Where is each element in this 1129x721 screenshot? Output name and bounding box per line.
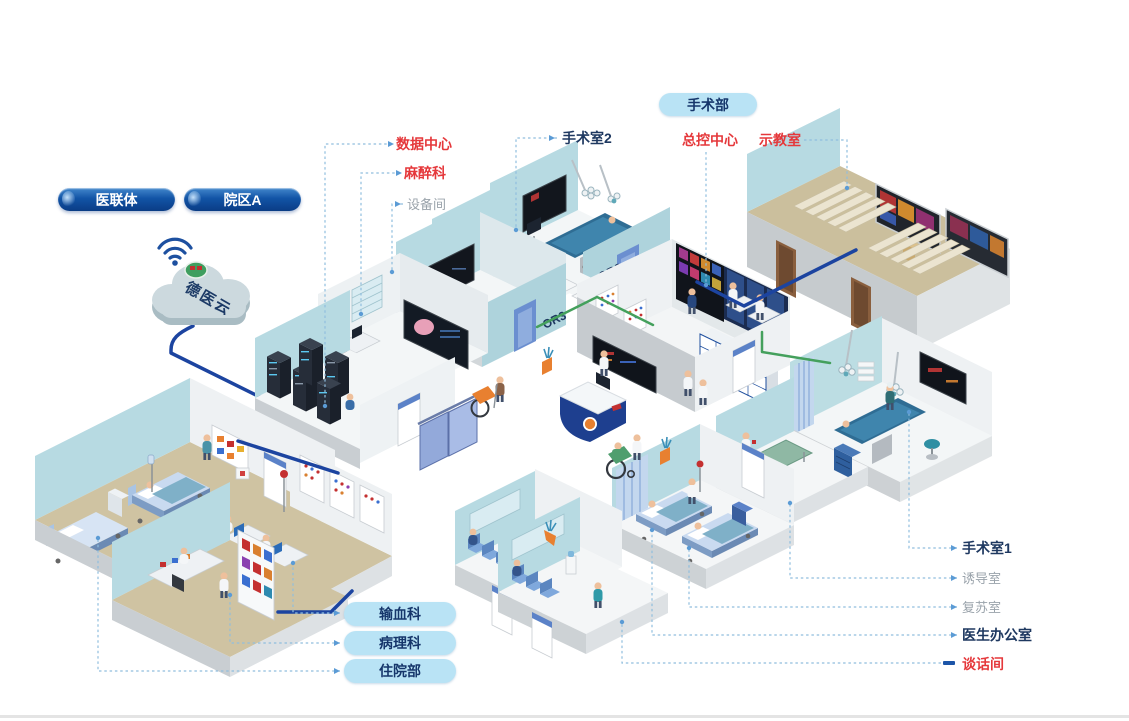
label-data-center: 数据中心: [396, 136, 452, 152]
label-demo-classroom: 示教室: [759, 132, 801, 148]
cloud-shape: 德医云: [152, 262, 250, 325]
bottom-edge-line: [0, 715, 1129, 718]
label-talk-room: 谈话间: [962, 656, 1004, 672]
cloud-platform: 德医云: [152, 239, 250, 325]
hall-plant-1: [542, 347, 553, 375]
pill-campus-a: 院区A: [184, 188, 301, 211]
label-equipment-room: 设备间: [407, 197, 446, 213]
label-induction-room: 诱导室: [962, 571, 1001, 587]
waiting-sitter-2: [513, 560, 522, 576]
reception-nurse: [600, 350, 609, 376]
medicine-cart: [236, 468, 249, 479]
pill-blood-transfusion: 输血科: [344, 602, 456, 626]
pill-medical-alliance-label: 医联体: [96, 190, 138, 210]
waiting-sitter-1: [469, 529, 478, 545]
cloud-badge: [185, 262, 207, 278]
pill-surgery-department-label: 手术部: [687, 95, 729, 115]
isometric-illustration: OR2 O: [0, 0, 1129, 721]
or1-equipment-cart: [858, 362, 874, 381]
or1-curtains: [794, 356, 814, 434]
label-master-control: 总控中心: [682, 132, 738, 148]
pill-inpatient: 住院部: [344, 659, 456, 683]
pill-campus-a-label: 院区A: [223, 190, 261, 210]
pill-pathology: 病理科: [344, 631, 456, 655]
pill-cap-highlight: [62, 191, 75, 207]
label-doctor-office: 医生办公室: [962, 627, 1032, 643]
pill-medical-alliance: 医联体: [58, 188, 175, 211]
label-operating-room-1: 手术室1: [962, 540, 1012, 556]
reception-logo: [585, 419, 595, 429]
wifi-icon: [159, 239, 191, 266]
pill-blood-transfusion-label: 输血科: [379, 604, 421, 624]
hospital-isometric-diagram: OR2 O: [0, 0, 1129, 721]
pill-surgery-department: 手术部: [659, 93, 757, 116]
pill-pathology-label: 病理科: [379, 633, 421, 653]
label-anesthesiology: 麻醉科: [404, 165, 446, 181]
pill-inpatient-label: 住院部: [379, 661, 421, 681]
label-recovery-room: 复苏室: [962, 600, 1001, 616]
label-operating-room-2: 手术室2: [562, 130, 612, 146]
talk-room-dash: [943, 661, 955, 665]
leader-talk-room: [622, 624, 941, 663]
pill-cap-highlight: [188, 191, 201, 207]
leader-induction: [790, 505, 957, 578]
or2-surgical-light: [582, 187, 620, 203]
